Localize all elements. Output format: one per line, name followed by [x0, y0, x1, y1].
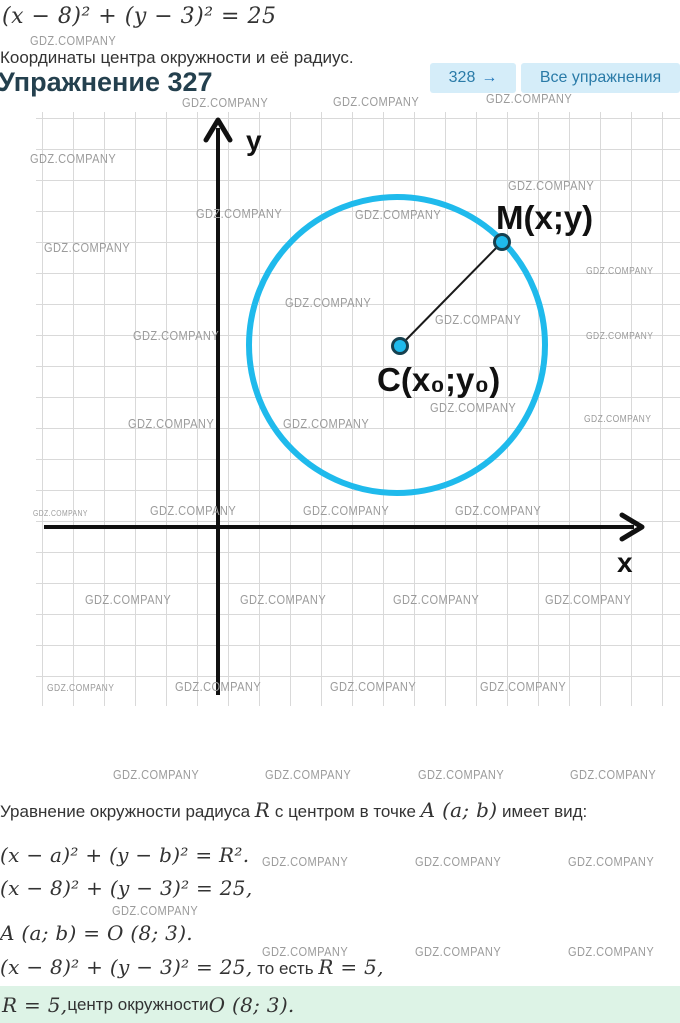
watermark: GDZ.COMPANY [480, 679, 566, 694]
watermark: GDZ.COMPANY [262, 854, 348, 869]
x-axis-label: x [617, 547, 633, 578]
text-segment: с центром в точке [270, 802, 421, 821]
math-segment: R = 5, [318, 955, 383, 979]
solution-intro: Уравнение окружности радиуса R с центром… [0, 798, 587, 822]
watermark: GDZ.COMPANY [570, 767, 656, 782]
y-axis-label: y [246, 125, 262, 156]
equation-conclusion: (x − 8)² + (y − 3)² = 25, то есть R = 5, [0, 955, 384, 979]
watermark: GDZ.COMPANY [418, 767, 504, 782]
watermark: GDZ.COMPANY [133, 328, 219, 343]
page: (x − 8)² + (y − 3)² = 25 GDZ.COMPANY Коо… [0, 0, 680, 1023]
text-segment: имеет вид: [497, 802, 587, 821]
watermark: GDZ.COMPANY [44, 240, 130, 255]
watermark: GDZ.COMPANY [303, 503, 389, 518]
watermark: GDZ.COMPANY [584, 414, 651, 425]
point-m-label: M(x;y) [496, 199, 593, 236]
equation-general: (x − a)² + (y − b)² = R². [0, 843, 249, 867]
watermark: GDZ.COMPANY [85, 592, 171, 607]
next-exercise-button[interactable]: 328→ [430, 63, 516, 93]
watermark: GDZ.COMPANY [486, 91, 572, 106]
watermark: GDZ.COMPANY [265, 767, 351, 782]
watermark: GDZ.COMPANY [150, 503, 236, 518]
watermark: GDZ.COMPANY [435, 312, 521, 327]
watermark: GDZ.COMPANY [508, 178, 594, 193]
watermark: GDZ.COMPANY [355, 207, 441, 222]
watermark: GDZ.COMPANY [128, 416, 214, 431]
equation-specific: (x − 8)² + (y − 3)² = 25, [0, 876, 252, 900]
watermark: GDZ.COMPANY [33, 509, 88, 518]
watermark: GDZ.COMPANY [415, 854, 501, 869]
watermark: GDZ.COMPANY [285, 295, 371, 310]
watermark: GDZ.COMPANY [586, 266, 653, 277]
watermark: GDZ.COMPANY [112, 903, 198, 918]
watermark: GDZ.COMPANY [415, 944, 501, 959]
watermark: GDZ.COMPANY [47, 683, 114, 694]
point-c-label: C(x₀;y₀) [377, 361, 500, 398]
watermark: GDZ.COMPANY [113, 767, 199, 782]
watermark: GDZ.COMPANY [586, 331, 653, 342]
exercise-title: Упражнение 327 [0, 67, 213, 98]
problem-subtitle: Координаты центра окружности и её радиус… [0, 48, 354, 68]
answer-highlight: R = 5, центр окружности O (8; 3). [0, 986, 680, 1023]
watermark: GDZ.COMPANY [568, 854, 654, 869]
math-segment: O (8; 3). [209, 993, 295, 1017]
point-m [495, 235, 510, 250]
watermark: GDZ.COMPANY [333, 94, 419, 109]
center-point [393, 339, 408, 354]
math-segment: R [255, 798, 270, 822]
watermark: GDZ.COMPANY [430, 400, 516, 415]
watermark: GDZ.COMPANY [30, 33, 116, 48]
watermark: GDZ.COMPANY [455, 503, 541, 518]
watermark: GDZ.COMPANY [240, 592, 326, 607]
radius-segment [400, 242, 502, 346]
watermark: GDZ.COMPANY [30, 151, 116, 166]
plot-canvas: y x M(x;y) C(x₀;y₀) [36, 112, 680, 706]
math-segment: (x − 8)² + (y − 3)² = 25, [0, 955, 252, 979]
text-segment: центр окружности [67, 995, 208, 1015]
watermark: GDZ.COMPANY [393, 592, 479, 607]
problem-formula: (x − 8)² + (y − 3)² = 25 [2, 4, 276, 29]
all-exercises-button[interactable]: Все упражнения [521, 63, 680, 93]
watermark: GDZ.COMPANY [545, 592, 631, 607]
next-exercise-number: 328 [449, 69, 476, 86]
text-segment: Уравнение окружности радиуса [0, 802, 255, 821]
arrow-right-icon: → [481, 69, 497, 86]
watermark: GDZ.COMPANY [283, 416, 369, 431]
watermark: GDZ.COMPANY [568, 944, 654, 959]
watermark: GDZ.COMPANY [330, 679, 416, 694]
math-segment: R = 5, [2, 993, 67, 1017]
watermark: GDZ.COMPANY [182, 95, 268, 110]
coordinate-plane: y x M(x;y) C(x₀;y₀) [36, 112, 680, 706]
watermark: GDZ.COMPANY [175, 679, 261, 694]
text-segment: то есть [252, 959, 318, 978]
equation-center: A (a; b) = O (8; 3). [0, 921, 193, 945]
watermark: GDZ.COMPANY [196, 206, 282, 221]
math-segment: A (a; b) [421, 798, 498, 822]
